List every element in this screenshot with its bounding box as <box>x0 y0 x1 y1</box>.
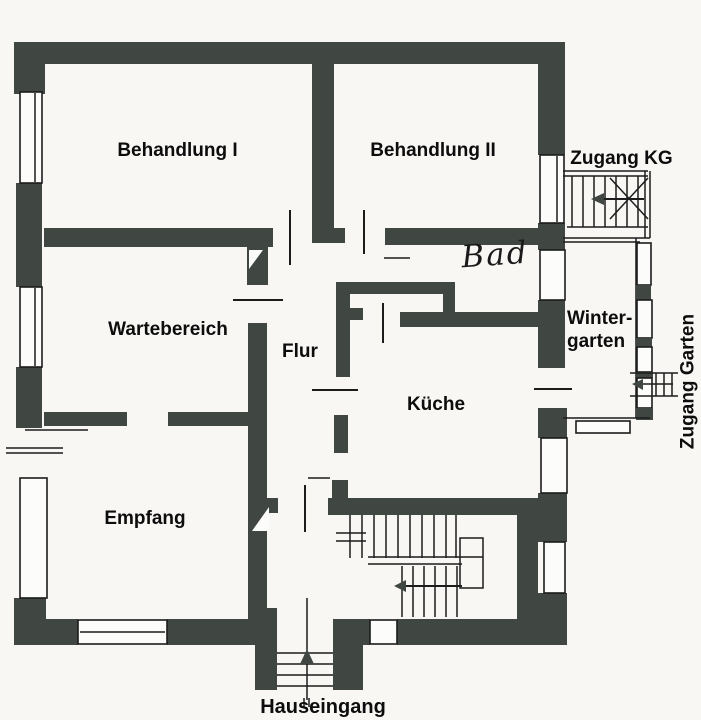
windows-layer-part <box>541 438 567 493</box>
windows-layer-part <box>20 92 42 183</box>
main-staircase-icon <box>336 515 483 617</box>
walls-layer-part <box>16 367 42 428</box>
windows-layer-part <box>540 155 564 223</box>
windows-layer-part <box>20 287 42 367</box>
room-label-kueche: Küche <box>393 394 479 415</box>
walls-layer-part <box>255 608 277 690</box>
walls-layer-part <box>400 312 538 327</box>
walls-layer-part <box>538 493 567 542</box>
main-staircase-icon-part <box>460 538 483 588</box>
walls-layer-part <box>336 282 455 294</box>
stair-direction-arrow-icon <box>394 580 406 592</box>
walls-layer-part <box>248 323 267 620</box>
floorplan-page: Behandlung I Behandlung II Zugang KG War… <box>0 0 701 720</box>
walls-layer-part <box>538 42 565 155</box>
wintergarten-glazing-part <box>636 285 651 300</box>
walls-layer-part <box>538 300 565 368</box>
walls-layer-part <box>333 619 370 645</box>
walls-layer-part <box>44 228 273 247</box>
walls-layer-part <box>312 228 345 243</box>
walls-layer-part <box>350 308 363 320</box>
walls-layer-part <box>334 415 348 453</box>
floorplan-drawing <box>0 0 701 720</box>
room-label-behandlung-2: Behandlung II <box>353 140 513 161</box>
wintergarten-line1: Winter- <box>567 307 657 330</box>
walls-layer-part <box>517 515 538 619</box>
room-label-flur: Flur <box>266 341 334 362</box>
walls-layer-part <box>332 480 348 500</box>
walls-layer-part <box>14 619 78 645</box>
windows-layer <box>20 92 567 644</box>
wintergarten-glazing-part <box>637 243 651 285</box>
walls-layer-part <box>333 645 363 690</box>
entrance-direction-arrow-icon <box>300 649 314 664</box>
walls-layer-part <box>538 408 567 438</box>
basement-stairs-icon <box>563 171 650 238</box>
wintergarten-glazing-part <box>576 421 630 433</box>
walls-layer-part <box>538 593 567 645</box>
windows-layer-part <box>544 542 565 593</box>
stair-direction-arrow-icon <box>591 193 604 205</box>
windows-layer-part <box>370 620 397 644</box>
wintergarten-line2: garten <box>567 330 657 353</box>
windows-layer-part <box>20 478 47 598</box>
walls-layer-part <box>312 60 334 235</box>
room-label-wartebereich: Wartebereich <box>88 319 248 340</box>
walls-layer-part <box>167 619 255 645</box>
walls-layer-part <box>14 42 45 94</box>
walls-layer-part <box>336 282 350 377</box>
room-label-empfang: Empfang <box>83 508 207 529</box>
annotation-zugang-kg: Zugang KG <box>564 148 679 169</box>
windows-layer-part <box>540 250 565 300</box>
walls-layer-part <box>538 223 565 250</box>
annotation-hauseingang: Hauseingang <box>258 697 388 718</box>
room-label-bad: Bad <box>449 242 540 269</box>
walls-layer-part <box>328 498 540 515</box>
annotation-zugang-garten: Zugang Garten <box>678 296 699 468</box>
walls-layer-part <box>443 282 455 317</box>
entrance-steps-icon <box>277 598 333 707</box>
walls-layer-part <box>16 183 42 287</box>
room-label-behandlung-1: Behandlung I <box>95 140 260 161</box>
walls-layer-part <box>44 412 127 426</box>
room-label-wintergarten: Winter- garten <box>567 307 657 353</box>
walls-layer-part <box>168 412 250 426</box>
walls-layer-part <box>14 42 563 64</box>
